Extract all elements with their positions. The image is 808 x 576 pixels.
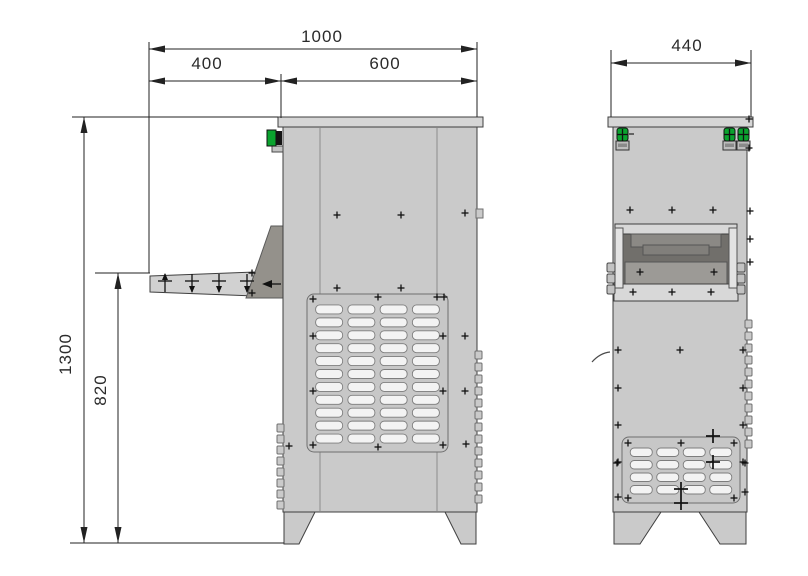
dim-label-total-height: 1300: [56, 333, 76, 375]
dim-label-tray-width: 400: [191, 54, 222, 74]
louver-slot: [657, 461, 679, 470]
hinge-bump: [475, 351, 482, 359]
louver-slot: [412, 395, 439, 404]
louver-slot: [316, 305, 343, 314]
dim-total-height: [81, 117, 88, 543]
button-slot: [725, 144, 734, 148]
side-right-leg: [445, 512, 476, 544]
louver-slot: [412, 357, 439, 366]
roller-bolt: [607, 274, 615, 283]
front-top-cap: [608, 117, 753, 127]
louver-slot: [412, 382, 439, 391]
side-connector-base: [272, 146, 283, 152]
roller-bolt: [737, 274, 745, 283]
dim-label-tray-height: 820: [91, 374, 111, 405]
opening-top-bar: [615, 224, 737, 234]
louver-slot: [316, 370, 343, 379]
louver-slot: [630, 448, 652, 457]
louver-slot: [380, 408, 407, 417]
louver-slot: [630, 461, 652, 470]
hinge-bump: [745, 380, 752, 388]
louver-slot: [316, 395, 343, 404]
dim-body-width: [281, 78, 477, 85]
dim-label-body-width: 600: [369, 54, 400, 74]
hinge-bump: [475, 363, 482, 371]
louver-slot: [348, 357, 375, 366]
side-top-right-tab: [476, 209, 483, 218]
louver-slot: [412, 318, 439, 327]
dim-front-width: [611, 60, 751, 67]
front-view-machine: [592, 116, 754, 545]
louver-slot: [412, 344, 439, 353]
louver-slot: [348, 382, 375, 391]
side-view-machine: [150, 117, 483, 544]
side-connector-black: [276, 131, 282, 145]
hinge-bump: [475, 411, 482, 419]
hinge-bump: [277, 424, 284, 432]
louver-slot: [380, 357, 407, 366]
dim-label-front-width: 440: [671, 36, 702, 56]
side-top-cap: [278, 117, 483, 127]
louver-slot: [380, 382, 407, 391]
hinge-bump: [745, 404, 752, 412]
drawing-layer: [0, 0, 808, 576]
opening-right-rail: [729, 228, 737, 288]
hinge-bump: [277, 479, 284, 487]
hinge-bump: [277, 435, 284, 443]
louver-slot: [348, 305, 375, 314]
louver-slot: [412, 331, 439, 340]
louver-slot: [683, 473, 705, 482]
side-left-leg: [284, 512, 315, 544]
louver-slot: [412, 421, 439, 430]
hinge-bump: [745, 344, 752, 352]
hinge-bump: [475, 435, 482, 443]
roller-bolt: [737, 263, 745, 272]
hinge-bump: [277, 457, 284, 465]
hinge-bump: [745, 392, 752, 400]
louver-slot: [316, 344, 343, 353]
louver-slot: [316, 318, 343, 327]
louver-slot: [380, 318, 407, 327]
roller-bolt: [737, 285, 745, 294]
hinge-bump: [277, 490, 284, 498]
front-right-leg: [699, 512, 746, 544]
louver-slot: [380, 395, 407, 404]
hinge-bump: [745, 440, 752, 448]
hinge-bump: [745, 332, 752, 340]
louver-slot: [657, 473, 679, 482]
louver-slot: [380, 305, 407, 314]
opening-left-rail: [615, 228, 623, 288]
hinge-bump: [475, 459, 482, 467]
louver-slot: [683, 448, 705, 457]
dim-tray-height: [115, 273, 122, 543]
louver-slot: [380, 344, 407, 353]
louver-slot: [657, 448, 679, 457]
roller-bolt: [607, 263, 615, 272]
louver-slot: [412, 434, 439, 443]
louver-slot: [412, 305, 439, 314]
ground-wire: [592, 352, 610, 362]
louver-slot: [348, 344, 375, 353]
side-connector-green: [267, 130, 276, 146]
hinge-bump: [745, 428, 752, 436]
louver-slot: [380, 331, 407, 340]
hinge-bump: [475, 483, 482, 491]
louver-slot: [316, 382, 343, 391]
technical-drawing-canvas: 1000 400 600 440 1300 820: [0, 0, 808, 576]
louver-slot: [348, 395, 375, 404]
louver-slot: [683, 461, 705, 470]
button-slot: [739, 144, 748, 148]
hinge-bump: [277, 446, 284, 454]
louver-slot: [710, 486, 732, 495]
opening-inner-tab: [643, 245, 709, 255]
louver-slot: [412, 408, 439, 417]
louver-slot: [630, 486, 652, 495]
louver-slot: [316, 434, 343, 443]
hinge-bump: [475, 495, 482, 503]
hinge-bump: [475, 399, 482, 407]
roller-bolt: [607, 285, 615, 294]
front-hinge-bumps-right: [745, 320, 752, 448]
hinge-bump: [745, 356, 752, 364]
louver-slot: [316, 421, 343, 430]
louver-slot: [348, 408, 375, 417]
hinge-bump: [475, 375, 482, 383]
hinge-bump: [475, 447, 482, 455]
louver-slot: [412, 370, 439, 379]
louver-slot: [316, 357, 343, 366]
louver-slot: [348, 370, 375, 379]
hinge-bump: [277, 501, 284, 509]
louver-slot: [380, 370, 407, 379]
front-left-leg: [614, 512, 661, 544]
louver-slot: [348, 318, 375, 327]
side-tray-bracket: [246, 226, 283, 298]
hinge-bump: [745, 320, 752, 328]
button-slot: [618, 144, 627, 148]
louver-slot: [630, 473, 652, 482]
louver-slot: [710, 473, 732, 482]
louver-slot: [348, 434, 375, 443]
hinge-bump: [277, 468, 284, 476]
dim-tray-width: [149, 78, 281, 85]
louver-slot: [316, 408, 343, 417]
louver-slot: [380, 434, 407, 443]
dim-label-total-width: 1000: [301, 27, 343, 47]
louver-slot: [348, 331, 375, 340]
hinge-bump: [475, 387, 482, 395]
louver-slot: [380, 421, 407, 430]
hinge-bump: [475, 423, 482, 431]
louver-slot: [348, 421, 375, 430]
hinge-bump: [745, 416, 752, 424]
hinge-bump: [745, 368, 752, 376]
hinge-bump: [475, 471, 482, 479]
louver-slot: [316, 331, 343, 340]
